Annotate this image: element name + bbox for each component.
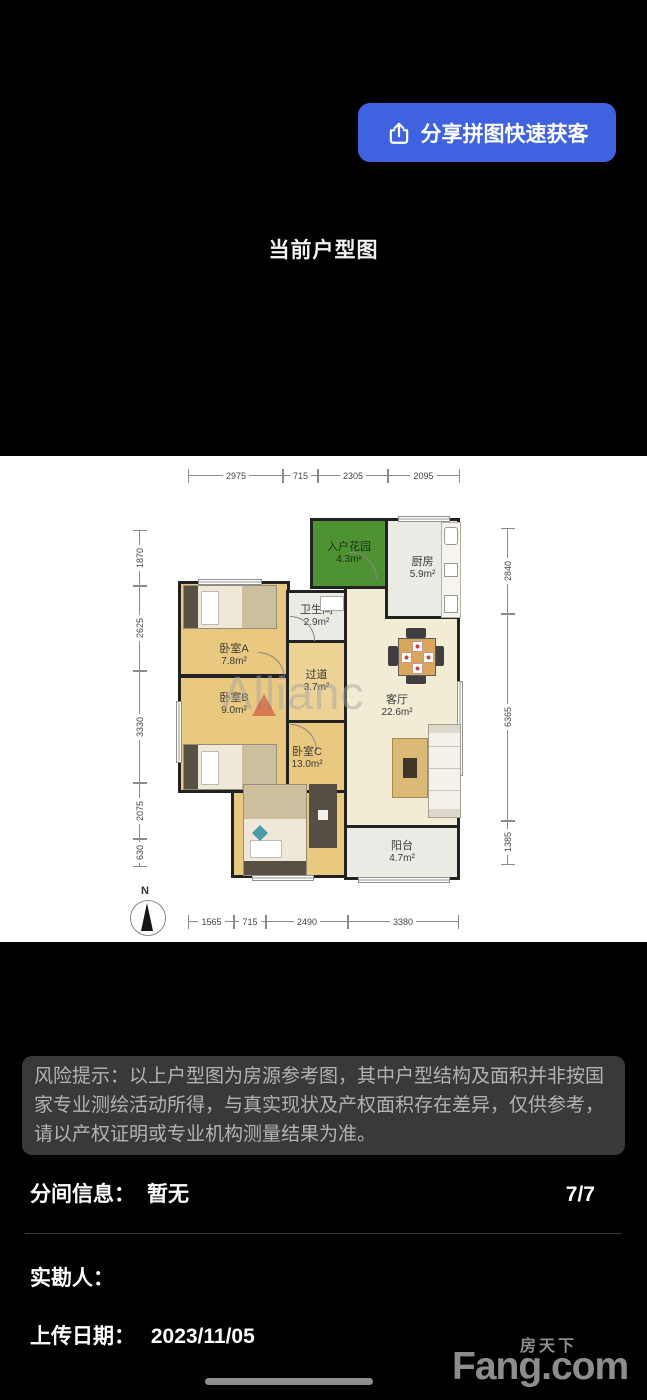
dim-left-3: 2075 <box>133 782 147 840</box>
dim-top-2: 2305 <box>317 469 389 483</box>
sofa <box>428 724 461 818</box>
home-indicator[interactable] <box>205 1378 373 1385</box>
dining-table <box>398 638 436 676</box>
share-upload-icon <box>386 120 412 146</box>
divider <box>25 1233 622 1234</box>
partition-info-value: 暂无 <box>147 1178 189 1208</box>
fang-logo-en: Fang.com <box>452 1345 628 1389</box>
room-bedroom-c-label: 卧室C 13.0m² <box>262 746 352 771</box>
bath-vanity <box>320 596 344 611</box>
risk-notice: 风险提示：以上户型图为房源参考图，其中户型结构及面积并非按国家专业测绘活动所得，… <box>22 1056 625 1155</box>
dim-left-1: 2625 <box>133 585 147 672</box>
upload-date-value: 2023/11/05 <box>151 1325 255 1348</box>
dim-left-2: 3330 <box>133 670 147 784</box>
room-balcony: 阳台 4.7m² <box>344 825 460 880</box>
window <box>176 701 182 763</box>
dim-bottom-0: 1565 <box>188 915 235 929</box>
upload-date-label: 上传日期： <box>30 1325 135 1348</box>
partition-info-row: 分间信息： 暂无 7/7 <box>30 1178 595 1208</box>
page-title: 当前户型图 <box>0 234 647 264</box>
dim-left-4: 630 <box>133 838 147 867</box>
dim-top-1: 715 <box>282 469 319 483</box>
compass-needle <box>141 903 153 931</box>
upload-date-row: 上传日期： 2023/11/05 <box>30 1320 255 1350</box>
share-button-label: 分享拼图快速获客 <box>421 118 589 148</box>
fang-logo: 房天下 Fang.com <box>452 1332 647 1396</box>
dim-bottom-3: 3380 <box>347 915 459 929</box>
screen: 分享拼图快速获客 当前户型图 卧室A 7.8m² 卧室B 9.0m² 过道 3.… <box>0 0 647 1400</box>
floorplan-image[interactable]: 卧室A 7.8m² 卧室B 9.0m² 过道 3.7m² 卫生间 2.9m² 入… <box>0 456 647 942</box>
surveyor-label: 实勘人： <box>30 1262 114 1292</box>
dim-right-0: 2840 <box>501 528 515 615</box>
coffee-table <box>392 738 428 798</box>
compass-north-label: N <box>141 885 149 897</box>
share-button[interactable]: 分享拼图快速获客 <box>358 103 616 162</box>
room-living-label: 客厅 22.6m² <box>355 694 439 719</box>
bed-c <box>243 784 307 876</box>
dim-top-0: 2975 <box>188 469 284 483</box>
dim-bottom-2: 2490 <box>265 915 349 929</box>
dim-right-1: 6365 <box>501 613 515 822</box>
alliance-watermark: Allianc <box>222 666 365 720</box>
dim-bottom-1: 715 <box>233 915 267 929</box>
wardrobe <box>309 784 337 848</box>
partition-info-label: 分间信息： <box>30 1178 135 1208</box>
window <box>358 877 450 883</box>
dim-right-2: 1385 <box>501 820 515 865</box>
bed-a <box>183 585 277 629</box>
dim-left-0: 1870 <box>133 530 147 587</box>
chair <box>388 646 398 666</box>
kitchen-counter <box>441 522 461 618</box>
page-indicator: 7/7 <box>566 1183 595 1207</box>
dim-top-3: 2095 <box>387 469 460 483</box>
chair <box>406 628 426 638</box>
